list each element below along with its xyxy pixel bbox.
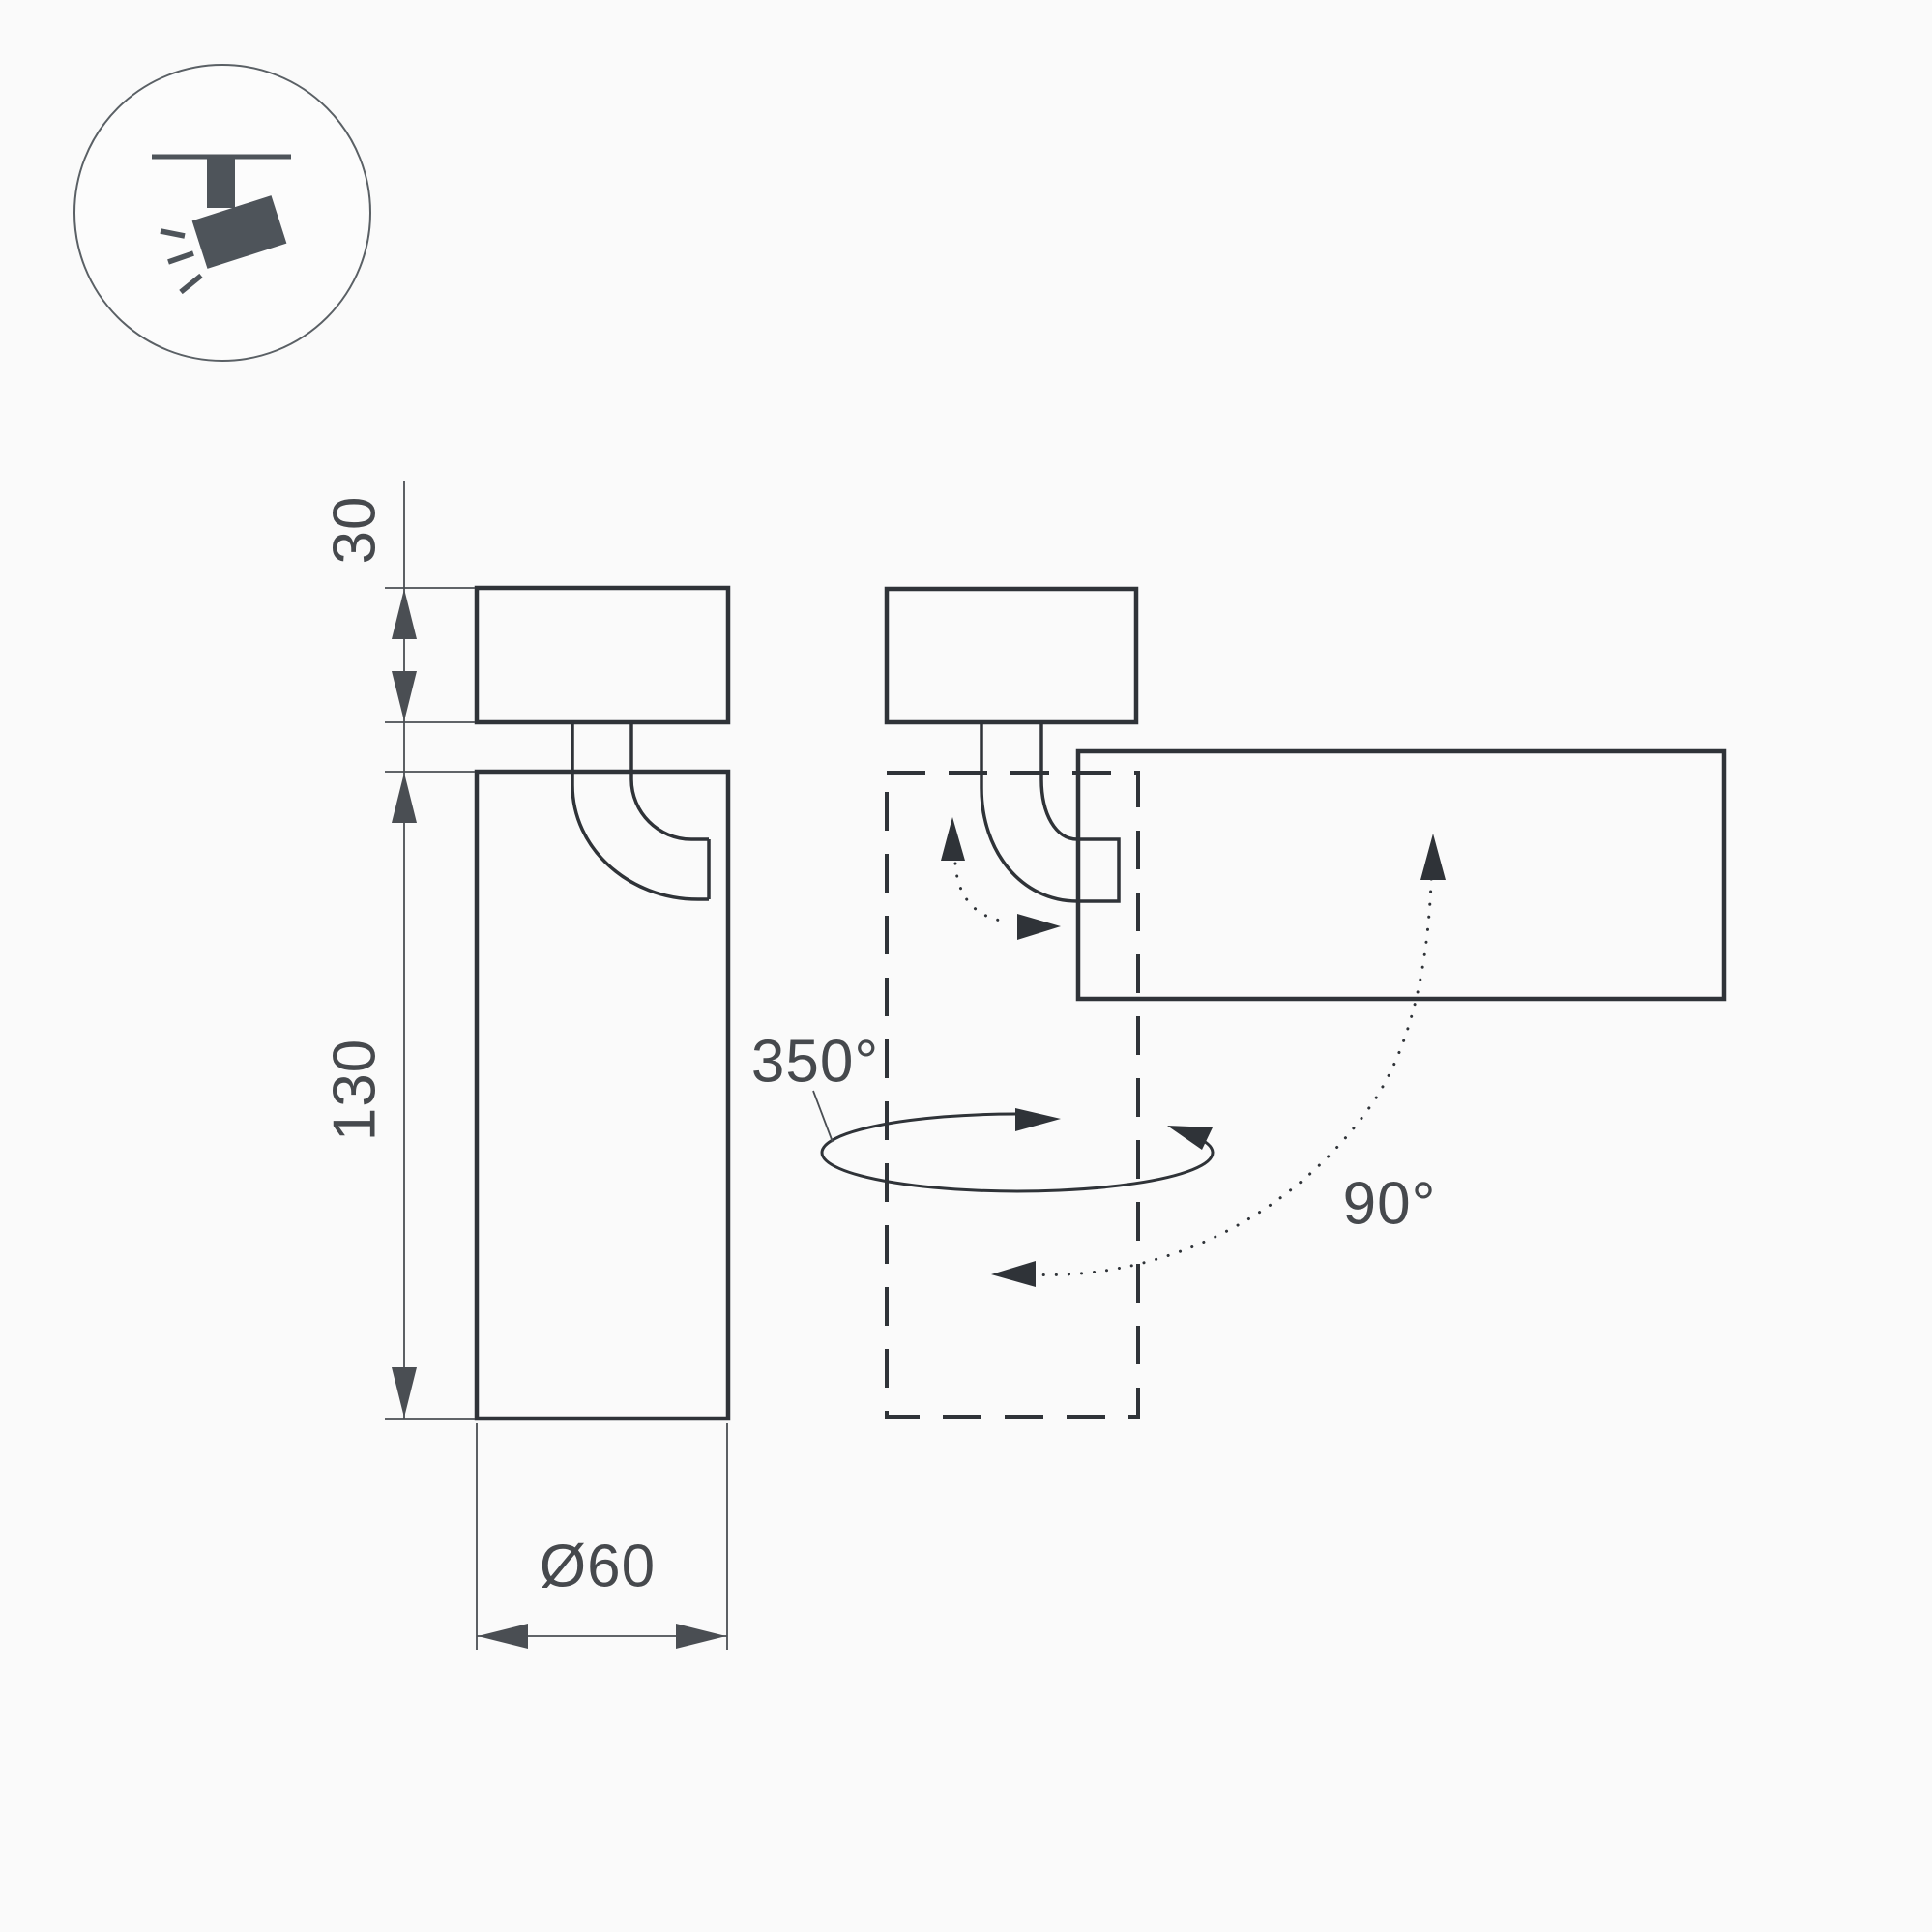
icon-mount-stem bbox=[207, 155, 235, 208]
dimension-drawing-page: 30 130 Ø60 bbox=[0, 0, 1932, 1932]
front-body-cylinder bbox=[477, 772, 728, 1419]
front-view bbox=[477, 588, 728, 1419]
tilt-angle-label: 90° bbox=[1343, 1171, 1437, 1238]
mount-height-label: 30 bbox=[322, 496, 389, 565]
rotation-mount-plate bbox=[887, 589, 1136, 722]
spotlight-dimension-drawing: 30 130 Ø60 bbox=[0, 0, 1932, 1932]
body-height-label: 130 bbox=[322, 1039, 389, 1141]
pan-angle-label: 350° bbox=[751, 1029, 879, 1096]
track-spotlight-icon bbox=[74, 65, 370, 361]
front-mount-plate bbox=[477, 588, 728, 722]
diameter-label: Ø60 bbox=[540, 1534, 656, 1600]
